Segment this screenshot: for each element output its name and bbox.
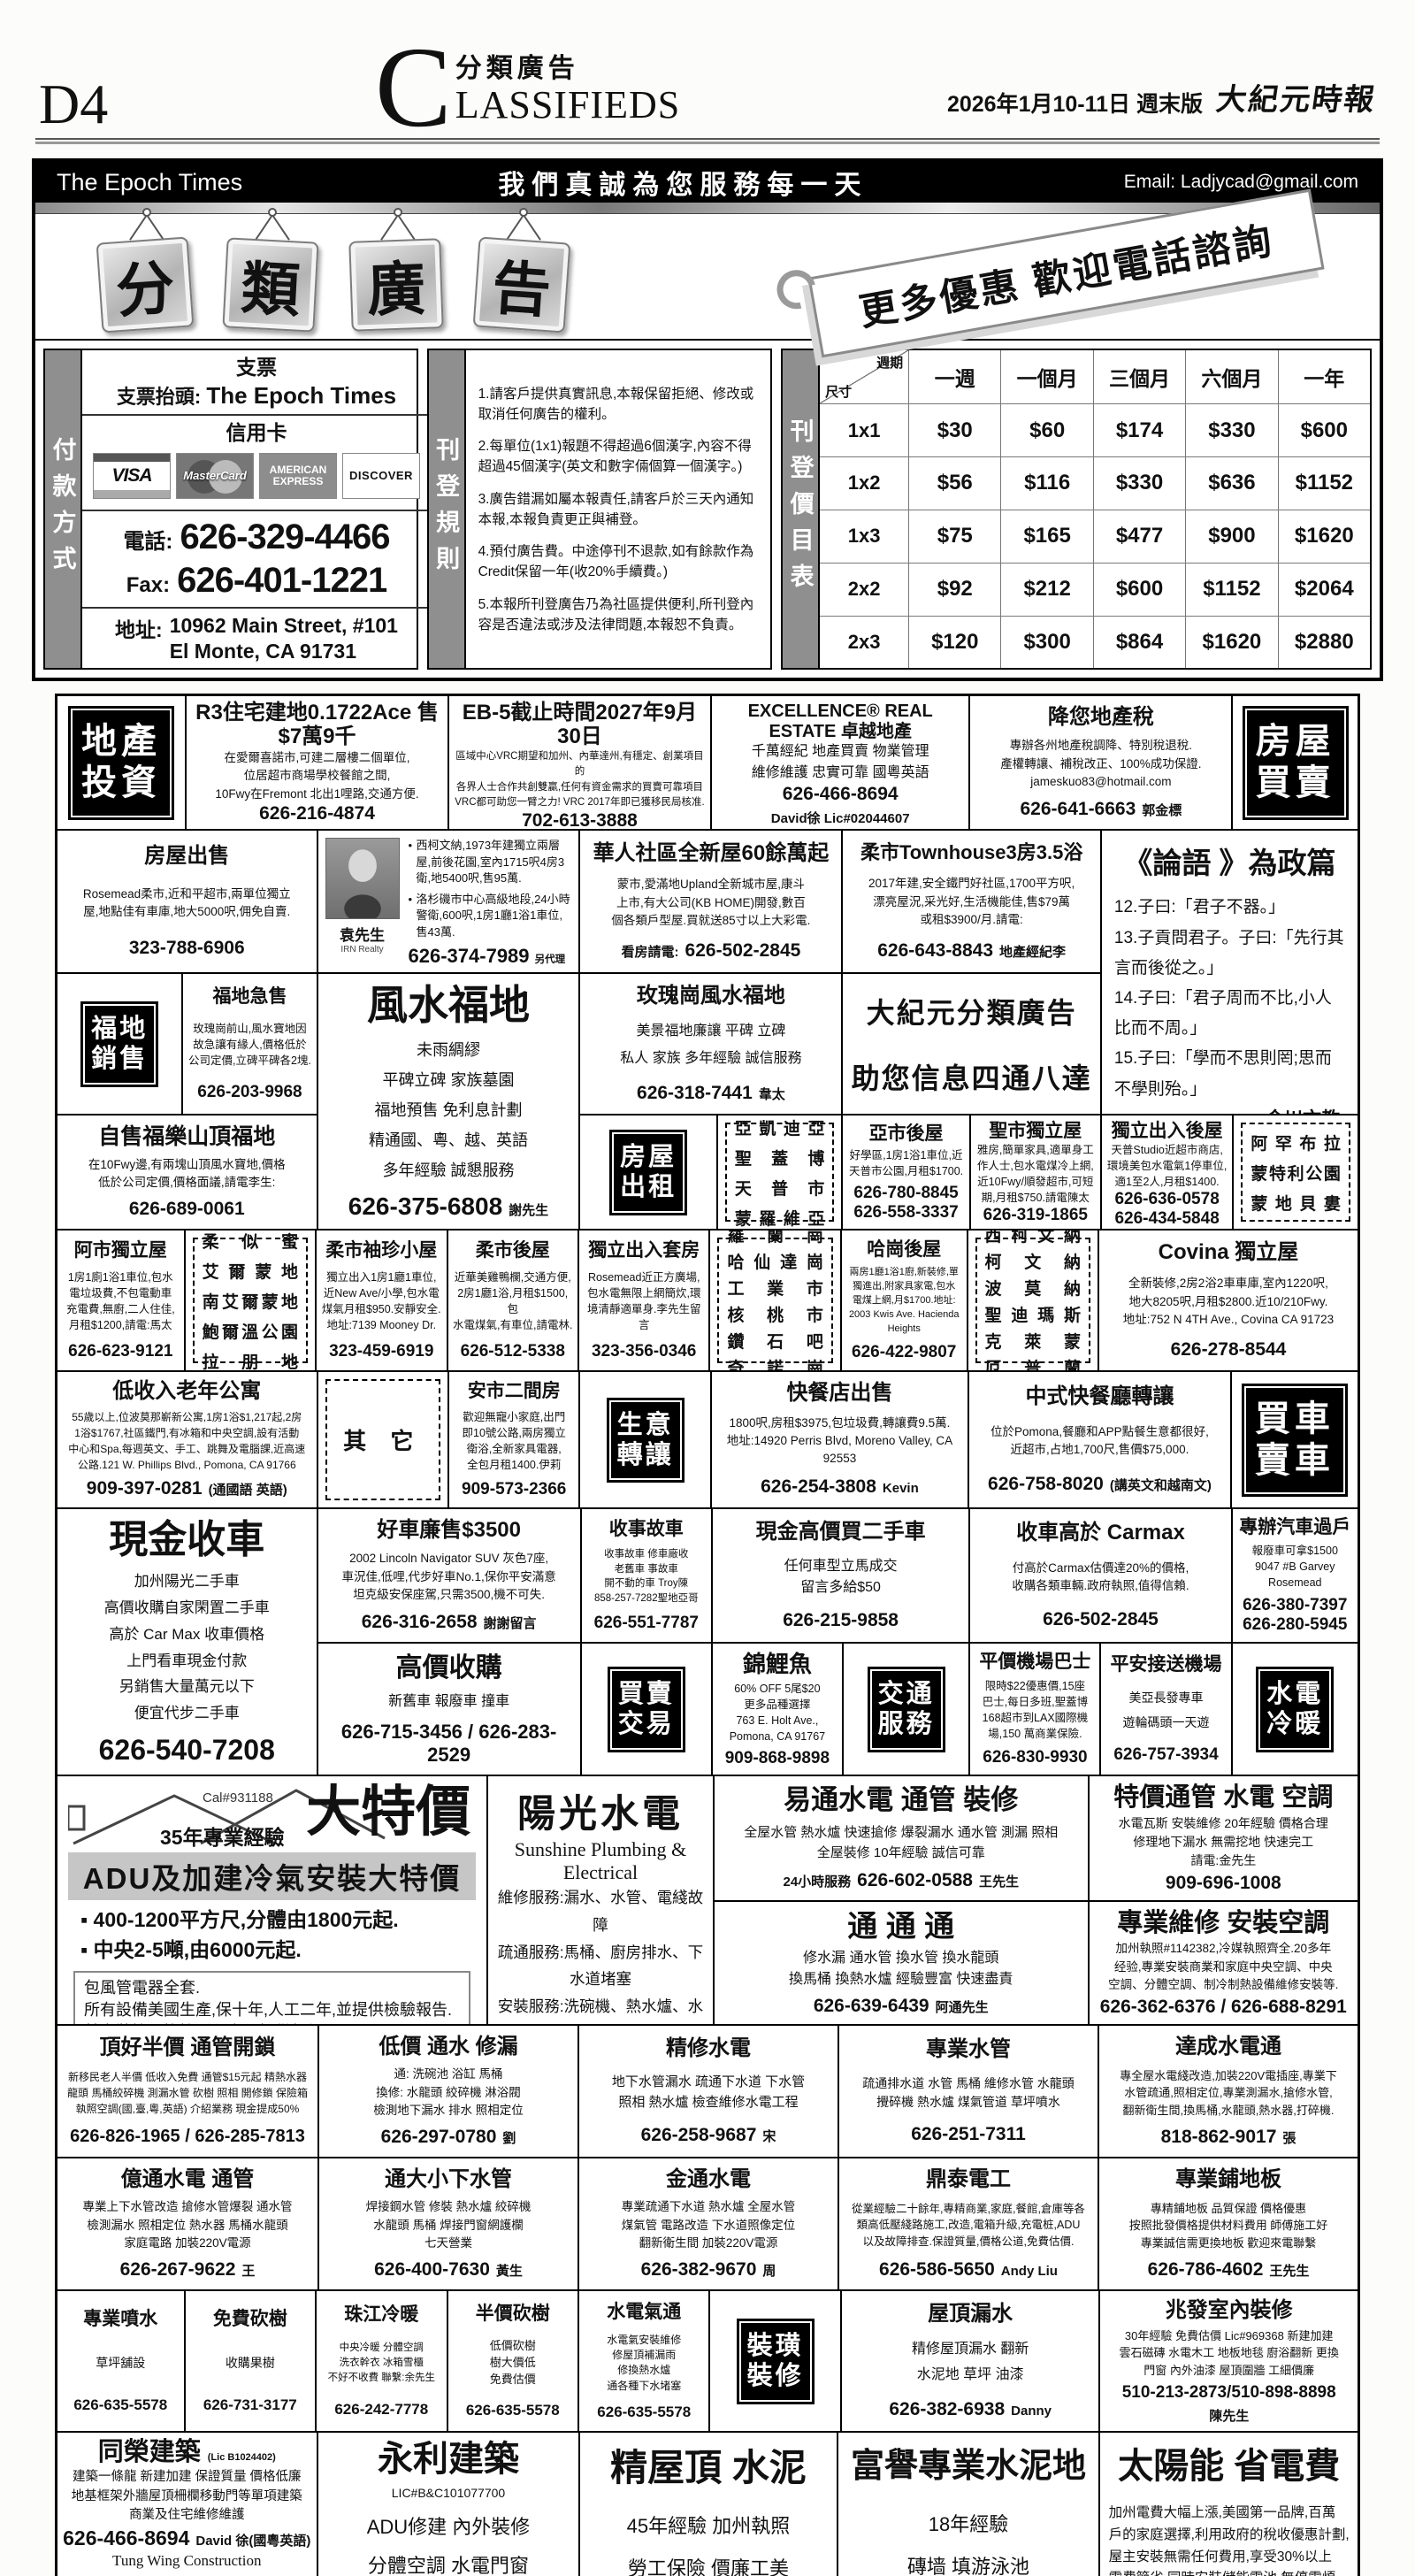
ad-ya-rear-house: 亞市後屋好學區,1房1浴1車位,近天普市公園,月租$1700.626-780-8… xyxy=(843,1115,968,1229)
ad-rosehills-grave: 玫瑰崗風水福地美景福地廉讓 平碑 立碑私人 家族 多年經驗 誠信服務626-31… xyxy=(580,972,841,1114)
section-title-cn: 分類廣告 xyxy=(455,46,681,85)
pricing-size: 1x1 xyxy=(820,403,908,456)
page-header: D4 C 分類廣告 LASSIFIEDS 2026年1月10-11日 週末版 大… xyxy=(0,0,1415,133)
phone-number: 626-512-5338 xyxy=(461,1342,565,1361)
region-covina: 西柯文納柯文納波莫納聖迪瑪斯克萊蒙厄普蘭 xyxy=(967,1230,1098,1370)
promo-ribbon: 更多優惠 歡迎電話諮詢 xyxy=(807,189,1324,358)
phone-suffix: 宋 xyxy=(762,2129,776,2144)
ad-sprinkler: 專業噴水草坪舖設626-635-5578 xyxy=(57,2291,184,2431)
phone-number: 702-613-3888 xyxy=(522,810,638,829)
pricing-col-header: 六個月 xyxy=(1185,350,1277,403)
ad-townhouse: 柔市Townhouse3房3.5浴2017年建,安全鐵門好社區,1700平方呎,… xyxy=(843,831,1100,972)
phone-suffix: 周 xyxy=(762,2264,776,2279)
paper-name: 大紀元時報 xyxy=(1214,75,1380,119)
pricing-value: $60 xyxy=(1000,403,1092,456)
pricing-corner: 週期尺寸 xyxy=(820,350,908,403)
pricing-value: $300 xyxy=(1000,616,1092,669)
pricing-col-header: 一年 xyxy=(1278,350,1370,403)
pin-icon xyxy=(394,208,402,217)
card-heading: 信用卡 xyxy=(89,420,424,447)
ad-epoch-house-ad: 大紀元分類廣告助您信息四通八達 xyxy=(843,972,1100,1114)
phone-number: 626-643-8843 xyxy=(877,940,993,962)
ad-fuyu-cement: 富譽專業水泥地 18年經驗磚墙 填游泳池木围墙 塑料塑木围墙 626-899-8… xyxy=(837,2433,1099,2576)
analects-signature: 金川文教 xyxy=(1114,1105,1345,1115)
address-label: 地址: xyxy=(115,613,163,664)
ad-koi-fish: 錦鯉魚60% OFF 5尾$20更多品種選擇763 E. Holt Ave.,P… xyxy=(711,1644,842,1775)
phone-number: 626-374-7989 xyxy=(409,945,530,967)
discover-icon: DISCOVER xyxy=(342,453,420,499)
pricing-side-label: 刊登價目表 xyxy=(783,350,820,668)
phone-suffix: 郭金標 xyxy=(1142,803,1182,818)
rules-box: 刊登規則 1.請客戶提供真實訊息,本報保留拒絕、修改或取消任何廣告的權利。 2.… xyxy=(427,349,773,670)
ad-above-carmax: 收車高於 Carmax付高於Carmax估價達20%的價格,收購各類車輛.政府執… xyxy=(968,1509,1230,1642)
band-services: 專業噴水草坪舖設626-635-5578 免費砍樹收購果樹626-731-317… xyxy=(57,2289,1358,2431)
ad-roof-leak: 屋頂漏水精修屋頂漏水 翻新水泥地 草坪 油漆626-382-6938Danny xyxy=(840,2291,1099,2431)
ad-chinese-fastfood: 中式快餐廳轉讓位於Pomona,餐廳和APP點餐生意都很好,近超市,占地1,70… xyxy=(968,1372,1230,1507)
rules-list: 1.請客戶提供真實訊息,本報保留拒絕、修改或取消任何廣告的權利。 2.每單位(1… xyxy=(466,350,771,668)
phone-number: 626-636-0578 xyxy=(1114,1190,1219,1209)
ad-title: 大特價 xyxy=(306,1785,470,1840)
ad-anshi-rooms: 安市二間房歡迎無寵小家庭,出門即10號公路,兩房獨立衛浴,全新家具電器,全包月租… xyxy=(447,1372,578,1507)
phone-number: 323-459-6919 xyxy=(329,1342,433,1361)
ad-cash-for-cars: 現金收車加州陽光二手車高價收購自家閑置二手車高於 Car Max 收車價格上門看… xyxy=(57,1509,317,1775)
ad-senior-apartment: 低收入老年公寓55歲以上,位波莫那嶄新公寓,1房1浴$1,217起,2房1浴$1… xyxy=(57,1372,317,1507)
phone-number: 626-758-8020 xyxy=(988,1474,1104,1495)
phone-suffix: 劉 xyxy=(502,2131,516,2146)
string-right xyxy=(397,215,416,241)
ad-special-pipe: 特價通管 水電 空調水電瓦斯 安裝維修 20年經驗 價格合理修理地下漏水 無需挖… xyxy=(1088,1776,1358,1900)
banner: The Epoch Times 我們真誠為您服務每一天 Email: Ladjy… xyxy=(35,162,1380,203)
ad-temple-rear-house: 獨立出入後屋天普Studio近超市商店,環境美包水電氣1停車位,適1至2人,月租… xyxy=(1102,1115,1232,1229)
ad-self-grave: 自售福樂山頂福地在10Fwy邊,有兩塊山頂風水寶地,價格低於公司定價,價格面議,… xyxy=(57,1114,317,1229)
phone-number: 626-254-3808 xyxy=(761,1476,876,1498)
payee-name: The Epoch Times xyxy=(206,382,396,409)
pricing-size: 1x3 xyxy=(820,510,908,563)
phone-number: 626-258-9687 xyxy=(641,2125,757,2146)
payment-box: 付款方式 支票 支票抬頭: The Epoch Times 信用卡 VISA M… xyxy=(43,349,418,670)
phone-number: 626-434-5848 xyxy=(1114,1209,1219,1229)
phone-number: 626-267-9622 xyxy=(120,2259,236,2281)
sign-plate: 告 xyxy=(473,237,571,333)
phone-number: 626-786-4602 xyxy=(1148,2259,1264,2281)
band-rentals: 阿市獨立屋1房1廁1浴1車位,包水電垃圾費,不包電動車充電費,無廚,二人住佳,月… xyxy=(57,1229,1358,1370)
phone-number: 626-382-9670 xyxy=(641,2259,757,2281)
hanging-signs: 分 類 廣 告 xyxy=(99,211,571,335)
rule-item: 1.請客戶提供真實訊息,本報保留拒絕、修改或取消任何廣告的權利。 xyxy=(478,384,759,425)
pricing-value: $92 xyxy=(908,563,1000,616)
phone-number: 626-689-0061 xyxy=(129,1199,245,1220)
phone-number: 626-623-9121 xyxy=(68,1342,172,1361)
ad-accident-car: 收事故車收事故車 修車廠收老舊車 事故車開不動的車 Troy陳858-257-7… xyxy=(580,1509,711,1642)
ad-pro-pipe: 專業水管疏通排水道 水管 馬桶 維修水管 水龍頭攪碎機 熱水爐 煤氣管道 草坪噴… xyxy=(838,2026,1098,2157)
string-right xyxy=(146,215,164,241)
ad-house-for-sale: 房屋出售Rosemead柔市,近和平超市,兩單位獨立屋,地點佳有車庫,地大500… xyxy=(57,831,317,972)
hanging-sign: 分 xyxy=(99,211,195,335)
pricing-value: $2880 xyxy=(1278,616,1370,669)
label-house-sale: 房屋買賣 xyxy=(1231,696,1358,829)
ad-solar: 太陽能 省電費 加州電費大幅上漲,美國第一品牌,百萬戶的家庭選擇,利用政府的稅收… xyxy=(1098,2433,1358,2576)
sign-plate: 分 xyxy=(96,237,195,333)
ad-roof-cement: 精屋頂 水泥 45年經驗 加州執照勞工保險 價廉工美專做大小工程 水泥地 626… xyxy=(578,2433,836,2576)
pin-icon xyxy=(519,208,528,217)
phone-number: 626-602-0588 xyxy=(857,1870,973,1891)
ad-rm-rear-house: 柔市後屋近華美雞鴨欄,交通方便,2房1廳1浴,月租$1500,包水電煤氣,有車位… xyxy=(447,1230,577,1370)
phone-number: 626-319-1865 xyxy=(983,1206,1088,1225)
payment-side-label: 付款方式 xyxy=(45,350,82,668)
ad-tong-tong-tong: 通 通 通修水漏 通水管 換水管 換水龍頭換馬桶 換熱水爐 經驗豐富 快速盡責6… xyxy=(715,1902,1088,2024)
pricing-value: $116 xyxy=(1000,456,1092,510)
region-rowland: 羅蘭崗哈仙達崗工業市核桃市鑽石吧奇諾崗 xyxy=(708,1230,839,1370)
ad-dacheng: 達成水電通專全屋水電綫改造,加裝220V電插座,專業下水管疏通,照相定位,專業測… xyxy=(1098,2026,1358,2157)
ad-high-price-buy: 高價收購新舊車 報廢車 撞車626-715-3456 / 626-283-252… xyxy=(318,1644,580,1775)
label-business-transfer: 生意轉讓 xyxy=(578,1372,709,1507)
mastercard-icon: MasterCard xyxy=(176,453,254,499)
card-row: 信用卡 VISA MasterCard AMERICAN EXPRESS DIS… xyxy=(82,416,431,511)
label-decor: 裝璜裝修 xyxy=(708,2291,839,2431)
masthead: 分 類 廣 告 更多優惠 歡迎電話諮詢 xyxy=(35,203,1380,341)
pin-icon xyxy=(268,208,277,217)
phone-suffix: 阿通先生 xyxy=(936,2000,989,2015)
address-line1: 10962 Main Street, #101 xyxy=(170,614,398,637)
pricing-value: $1620 xyxy=(1278,510,1370,563)
phone-suffix: 地產經紀李 xyxy=(999,945,1066,960)
phone-number: 626-780-8845 xyxy=(853,1184,958,1203)
phone-number: 626-715-3456 / 626-283-2529 xyxy=(323,1721,576,1766)
ad-cheap-fix: 低價 通水 修漏通: 洗碗池 浴缸 馬桶換修: 水龍頭 絞碎機 淋浴閥檢測地下漏… xyxy=(317,2026,577,2157)
ad-eb5: EB-5截止時間2027年9月30日區域中心VRC期望和加州、內華達州,有穩定、… xyxy=(447,696,710,829)
phone-suffix: 王 xyxy=(241,2264,255,2279)
header-right: 2026年1月10-11日 週末版 大紀元時報 xyxy=(947,75,1376,129)
phone-number: 626-297-0780 xyxy=(381,2127,497,2148)
phone-number: 909-868-9898 xyxy=(725,1749,830,1768)
label-plumbing-hvac: 水電冷暖 xyxy=(1231,1644,1358,1775)
ad-fengshui-grave: 風水福地未雨綢繆平碑立碑 家族墓園福地預售 免利息計劃精通國、粵、越、英語多年經… xyxy=(318,972,579,1229)
phone-number: 626-382-6938 xyxy=(889,2399,1005,2420)
string-left xyxy=(255,215,273,241)
phone-number: 626-635-5578 xyxy=(597,2403,691,2421)
pricing-value: $212 xyxy=(1000,563,1092,616)
phone-number: 818-862-9017 xyxy=(1161,2127,1277,2148)
phone-number: 626-380-7397 xyxy=(1243,1596,1347,1615)
agent-photo xyxy=(325,838,400,919)
phone-prefix: 看房請電: xyxy=(622,945,679,960)
address-row: 地址: 10962 Main Street, #101 El Monte, CA… xyxy=(82,609,431,669)
ad-airport-shuttle: 平安接送機場美亞長發專車遊輪碼頭一天遊626-757-3934 xyxy=(1099,1644,1230,1775)
contractor-license: Cal#931188 xyxy=(203,1790,273,1805)
promo-frame: The Epoch Times 我們真誠為您服務每一天 Email: Ladjy… xyxy=(32,158,1383,681)
pricing-value: $174 xyxy=(1093,403,1185,456)
card-logos: VISA MasterCard AMERICAN EXPRESS DISCOVE… xyxy=(89,447,424,505)
phone-number: 626-731-3177 xyxy=(203,2396,297,2414)
ad-jingxiu: 精修水電地下水管漏水 疏通下水道 下水管照相 熱水爐 檢查維修水電工程626-2… xyxy=(577,2026,838,2157)
phone-number: 510-213-2873/510-898-8898 xyxy=(1122,2383,1336,2403)
ad-jintong: 金通水電專業疏通下水道 熱水爐 全屋水管煤氣管 電路改造 下水道照像定位翻新衛生… xyxy=(577,2158,838,2289)
ad-ah-house: 阿市獨立屋1房1廁1浴1車位,包水電垃圾費,不包電動車充電費,無廚,二人住佳,月… xyxy=(57,1230,184,1370)
region-other: 其 它 xyxy=(317,1372,447,1507)
phone-number: 626-400-7630 xyxy=(374,2259,490,2281)
check-heading: 支票 xyxy=(89,355,424,381)
phone-number: 626-635-5578 xyxy=(73,2396,167,2414)
phone-number: 626-251-7311 xyxy=(911,2124,1026,2145)
check-row: 支票 支票抬頭: The Epoch Times xyxy=(82,350,431,416)
ad-sg-house: 聖市獨立屋雅房,簡單家具,適單身工作人士,包水電煤冷上網,近10Fwy/順發超市… xyxy=(969,1115,1100,1229)
string-right xyxy=(523,215,541,241)
phone-number: 626-757-3934 xyxy=(1113,1745,1218,1765)
pricing-value: $600 xyxy=(1093,563,1185,616)
phone-number: 626-558-3337 xyxy=(853,1203,958,1223)
phone-number: 626-641-6663 xyxy=(1021,799,1136,820)
license-number: LIC#B&C101077700 xyxy=(392,2482,505,2505)
phone-suffix: David 徐(國粵英語) xyxy=(195,2534,310,2549)
ad-subtitle: Sunshine Plumbing & Electrical xyxy=(495,1838,706,1884)
ad-good-car: 好車廉售$35002002 Lincoln Navigator SUV 灰色7座… xyxy=(318,1509,580,1642)
phone-suffix: Danny xyxy=(1011,2403,1052,2419)
pricing-value: $2064 xyxy=(1278,563,1370,616)
band-housing-graves: 房屋出售Rosemead柔市,近和平超市,兩單位獨立屋,地點佳有車庫,地大500… xyxy=(57,829,1358,1229)
region-sgv: 亞凱迪亞聖蓋博天普市蒙羅維亞 xyxy=(716,1115,842,1229)
phone-number: 626-422-9807 xyxy=(852,1343,956,1362)
payee-label: 支票抬頭: xyxy=(117,386,201,408)
ad-fastfood-sale: 快餐店出售1800呎,房租$3975,包垃圾費,轉讓費9.5萬.地址:14920… xyxy=(710,1372,968,1507)
phone-suffix: David徐 Lic#02044607 xyxy=(771,811,910,826)
string-right xyxy=(272,215,290,241)
classifieds-table: 地產投資 R3住宅建地0.1722Ace 售$7萬9千在愛爾喜諾市,可建二層樓二… xyxy=(55,694,1360,2576)
ad-yitong2: 億通水電 通管專業上下水管改造 搶修水管爆裂 通水管檢測漏水 照相定位 熱水器 … xyxy=(57,2158,317,2289)
phone-suffix: 張 xyxy=(1282,2131,1296,2146)
sign-plate: 類 xyxy=(222,238,318,333)
rule-item: 2.每單位(1x1)報題不得超過6個漢字,內容不得超過45個漢字(英文和數字倆個… xyxy=(478,436,759,478)
phone-number: 626-278-8544 xyxy=(1171,1339,1287,1361)
ad-excellence: EXCELLENCE® REAL ESTATE 卓越地產千萬經紀 地產買賣 物業… xyxy=(710,696,969,829)
ad-utility-fix: 水電氣通水電氣安裝維修修屋頂補漏雨修換熱水爐通各種下水堵塞626-635-557… xyxy=(577,2291,708,2431)
rule-item: 3.廣告錯漏如屬本報責任,請客戶於三天內通知本報,本報負責更正與補登。 xyxy=(478,489,759,531)
pricing-col-header: 一週 xyxy=(908,350,1000,403)
phone-number: 626-316-2658 xyxy=(362,1612,478,1633)
ad-zhaofa-remodel: 兆發室內裝修30年經驗 免費估價 Lic#969368 新建加建雲石磁磚 水電木… xyxy=(1098,2291,1358,2431)
ad-tongrong-construction: 同榮建築 (Lic B1024402) 建築一條龍 新建加建 保證質量 價格低廉… xyxy=(57,2433,317,2576)
pricing-value: $330 xyxy=(1093,456,1185,510)
agent-name: 袁先生 xyxy=(340,923,385,945)
issue-date: 2026年1月10-11日 週末版 xyxy=(947,87,1203,119)
pricing-value: $56 xyxy=(908,456,1000,510)
pricing-value: $120 xyxy=(908,616,1000,669)
phone-suffix: 王先生 xyxy=(979,1874,1019,1890)
rule-item: 5.本報所刊登廣告乃為社區提供便利,所刊登內容是否違法或涉及法律問題,本報恕不負… xyxy=(478,594,759,636)
phone-number: 626-280-5945 xyxy=(1243,1615,1347,1635)
phone-number: 626-215-9858 xyxy=(783,1610,899,1631)
pricing-value: $864 xyxy=(1093,616,1185,669)
string-left xyxy=(380,215,399,241)
pricing-value: $75 xyxy=(908,510,1000,563)
ribbon-text: 更多優惠 歡迎電話諮詢 xyxy=(807,189,1324,358)
pricing-col-header: 一個月 xyxy=(1000,350,1092,403)
pin-icon xyxy=(142,208,151,217)
band-plumbers-1: 頂好半價 通管開鎖新移民老人半價 低收入免費 通管$15元起 精熱水器龍頭 馬桶… xyxy=(57,2024,1358,2157)
ad-property-tax: 降您地產稅專辦各州地產稅調降、特別稅退稅.產權轉讓、補稅改正、100%成功保證.… xyxy=(968,696,1231,829)
ad-zhujiang-hvac: 珠江冷暖中央冷暖 分體空調洗衣幹衣 冰箱雪櫃不好不收費 聯繫:余先生626-24… xyxy=(315,2291,446,2431)
phone-number: 323-788-6906 xyxy=(129,938,245,959)
pricing-table: 週期尺寸 一週 一個月 三個月 六個月 一年 1x1 $30 $60 $174 … xyxy=(820,350,1370,668)
phone-number: 626-318-7441 xyxy=(637,1083,753,1104)
ad-yitong-plumbing: 易通水電 通管 裝修全屋水管 熱水爐 快速搶修 爆裂漏水 通水管 測漏 照相全屋… xyxy=(715,1776,1088,1900)
pricing-box: 刊登價目表 週期尺寸 一週 一個月 三個月 六個月 一年 1x1 $30 $60… xyxy=(781,349,1372,670)
amex-icon: AMERICAN EXPRESS xyxy=(259,453,337,499)
phone-suffix: (講英文和越南文) xyxy=(1110,1478,1212,1493)
phone-number: 626-502-2845 xyxy=(685,940,801,962)
address-line2: El Monte, CA 91731 xyxy=(170,640,356,663)
band-business: 低收入老年公寓55歲以上,位波莫那嶄新公寓,1房1浴$1,217起,2房1浴$1… xyxy=(57,1370,1358,1507)
label-car-trade: 買車賣車 xyxy=(1230,1372,1358,1507)
pricing-size: 2x3 xyxy=(820,616,908,669)
pricing-value: $330 xyxy=(1185,403,1277,456)
ad-dinghao: 頂好半價 通管開鎖新移民老人半價 低收入免費 通管$15元起 精熱水器龍頭 馬桶… xyxy=(57,2026,317,2157)
ad-flooring: 專業鋪地板專精鋪地板 品質保證 價格優惠按照批發價格提供材料費用 師傅施工好專業… xyxy=(1098,2158,1358,2289)
phone-number: 909-397-0281 xyxy=(87,1478,203,1499)
section-initial: C xyxy=(375,47,452,130)
ad-free-tree-cut: 免費砍樹收購果樹626-731-3177 xyxy=(184,2291,315,2431)
ad-hvac-big-sale: Cal#931188 35年專業經驗 大特價 ADU及加建冷氣安裝大特價 400… xyxy=(57,1776,486,2024)
license-number: (Lic B1024402) xyxy=(208,2452,276,2463)
ad-suite: 獨立出入套房Rosemead近正方廣場,包水電無限上網簡炊,環境清靜適單身.李先… xyxy=(577,1230,708,1370)
ad-airport-bus: 平價機場巴士限時$22優惠價,15座巴士,每日多班,聖蓋博168超市到LAX國際… xyxy=(968,1644,1099,1775)
phone-number: 909-573-2366 xyxy=(462,1480,566,1499)
ad-half-price-tree: 半價砍樹低價砍樹樹大價低免費估價626-635-5578 xyxy=(447,2291,577,2431)
office-phone: 626-329-4466 xyxy=(180,517,389,557)
ad-r3-land: R3住宅建地0.1722Ace 售$7萬9千在愛爾喜諾市,可建二層樓二個單位,位… xyxy=(185,696,447,829)
header-rule xyxy=(35,138,1380,144)
section-title-en: LASSIFIEDS xyxy=(455,85,681,126)
ad-car-title-transfer: 專辦汽車過戶報廢車可拿$15009047 #B Garvey Rosemead6… xyxy=(1231,1509,1358,1642)
label-house-rent: 房屋出租 xyxy=(580,1115,715,1229)
phone-suffix: 王先生 xyxy=(1269,2264,1309,2279)
banner-brand: The Epoch Times xyxy=(57,169,242,196)
hanging-sign: 類 xyxy=(225,211,320,335)
visa-icon: VISA xyxy=(93,453,171,499)
pricing-value: $1152 xyxy=(1278,456,1370,510)
band-plumbers-2: 億通水電 通管專業上下水管改造 搶修水管爆裂 通水管檢測漏水 照相定位 熱水器 … xyxy=(57,2157,1358,2289)
pricing-value: $900 xyxy=(1185,510,1277,563)
phone-number: 626-242-7778 xyxy=(334,2401,428,2419)
phone-number: 626-586-5650 xyxy=(879,2259,995,2281)
band-cars: 現金收車加州陽光二手車高價收購自家閑置二手車高於 Car Max 收車價格上門看… xyxy=(57,1507,1358,1775)
band-hvac: Cal#931188 35年專業經驗 大特價 ADU及加建冷氣安裝大特價 400… xyxy=(57,1775,1358,2024)
phone-suffix: Andy Liu xyxy=(1001,2264,1058,2279)
phone-number: 909-696-1008 xyxy=(1166,1873,1281,1894)
phone-number: 626-639-6439 xyxy=(814,1996,929,2017)
phone-suffix: 陳先生 xyxy=(1209,2409,1249,2424)
phone-suffix: Kevin xyxy=(883,1481,919,1496)
phone-fax-row: 電話:626-329-4466 Fax:626-401-1221 xyxy=(82,511,431,609)
phone-number: 626-362-6376 / 626-688-8291 xyxy=(1100,1997,1347,2018)
pricing-value: $165 xyxy=(1000,510,1092,563)
phone-suffix: 韋太 xyxy=(759,1087,785,1102)
agent-company: IRN Realty xyxy=(340,945,383,954)
phone-number: 626-216-4874 xyxy=(259,803,375,824)
phone-suffix: 黃生 xyxy=(496,2264,523,2279)
hanging-sign: 廣 xyxy=(350,211,446,335)
phone-number: 626-551-7787 xyxy=(594,1614,699,1633)
ad-new-homes: 華人社區全新屋60餘萬起蒙市,愛滿地Upland全新城市屋,康斗上市,有大公司(… xyxy=(580,831,841,972)
hanging-sign: 告 xyxy=(476,211,571,335)
ad-hacienda-rear: 哈崗後屋兩房1廳1浴1廚,新裝修,單獨進出,附家具家電,包水電煤上網,月$170… xyxy=(840,1230,967,1370)
page-number: D4 xyxy=(39,79,108,130)
band-construction: 同榮建築 (Lic B1024402) 建築一條龍 新建加建 保證質量 價格低廉… xyxy=(57,2431,1358,2576)
ad-subtitle-bar: ADU及加建冷氣安裝大特價 xyxy=(68,1852,476,1900)
label-grave-sale: 福地銷售 xyxy=(57,974,181,1114)
band-real-estate: 地產投資 R3住宅建地0.1722Ace 售$7萬9千在愛爾喜諾市,可建二層樓二… xyxy=(57,696,1358,829)
info-band: 付款方式 支票 支票抬頭: The Epoch Times 信用卡 VISA M… xyxy=(35,341,1380,678)
pricing-col-header: 三個月 xyxy=(1093,350,1185,403)
phone-number: 626-635-5578 xyxy=(466,2402,560,2419)
newspaper-page: D4 C 分類廣告 LASSIFIEDS 2026年1月10-11日 週末版 大… xyxy=(0,0,1415,2576)
phone-number: 626-466-8694 xyxy=(63,2526,189,2549)
ad-rm-tiny-house: 柔市袖珍小屋獨立出入1房1廳1車位,近New Ave/小學,包水電煤氣月租$95… xyxy=(315,1230,446,1370)
string-left xyxy=(506,215,524,241)
rules-side-label: 刊登規則 xyxy=(429,350,466,668)
pricing-value: $1620 xyxy=(1185,616,1277,669)
section-title: C 分類廣告 LASSIFIEDS xyxy=(375,46,680,129)
label-real-estate-invest: 地產投資 xyxy=(57,696,185,829)
phone-number: 626-826-1965 / 626-285-7813 xyxy=(70,2127,305,2147)
region-rosemead: 柔似蜜艾爾蒙地南艾爾蒙地鮑爾溫公園拉朋地 xyxy=(184,1230,315,1370)
ad-dingtai-electric: 鼎泰電工從業經驗二十餘年,專精商業,家庭,餐館,倉庫等各類高低壓綫路施工,改造,… xyxy=(838,2158,1098,2289)
ad-cash-buy-used: 現金高價買二手車任何車型立馬成交留言多給$50626-215-9858 xyxy=(711,1509,969,1642)
pricing-value: $1152 xyxy=(1185,563,1277,616)
rule-item: 4.預付廣告費。中途停刊不退款,如有餘款作為Credit保留一年(收20%手續費… xyxy=(478,541,759,583)
pricing-value: $30 xyxy=(908,403,1000,456)
phone-number: 626-830-9930 xyxy=(983,1748,1087,1767)
sign-plate: 廣 xyxy=(348,238,443,332)
phone-label: 電話: xyxy=(123,524,172,555)
banner-email: Email: Ladjycad@gmail.com xyxy=(1124,172,1358,193)
pricing-size: 2x2 xyxy=(820,563,908,616)
ad-covina-house: Covina 獨立屋全新裝修,2房2浴2車車庫,室內1220呎,地大8205呎,… xyxy=(1098,1230,1358,1370)
ad-sunshine-plumbing: 陽光水電 Sunshine Plumbing & Electrical 維修服務… xyxy=(486,1776,713,2024)
pricing-value: $636 xyxy=(1185,456,1277,510)
ad-pro-ac: 專業維修 安裝空調加州執照#1142382,冷媒執照齊全.20多年经验,專業安裝… xyxy=(1088,1902,1358,2024)
phone-suffix: (通國語 英語) xyxy=(209,1483,287,1498)
ad-yongli-construction: 永利建築 LIC#B&C101077700 ADU修建 內外裝修分體空調 水電門… xyxy=(317,2433,579,2576)
phone-number: 626-203-9968 xyxy=(197,1083,302,1102)
ad-agent-yuan: 袁先生IRN Realty 西柯文納,1973年建獨立兩層屋,前後花園,室內17… xyxy=(318,831,579,972)
banner-slogan: 我們真誠為您服務每一天 xyxy=(498,163,868,202)
ad-grave-urgent: 福地急售玫瑰崗前山,風水寶地因故急讓有緣人,價格低於公司定價,立碑平碑各2塊.6… xyxy=(181,974,316,1114)
label-buy-sell-trade: 買賣交易 xyxy=(580,1644,711,1775)
phone-suffix: 謝謝留言 xyxy=(484,1616,537,1631)
phone-prefix: 24小時服務 xyxy=(783,1874,851,1890)
string-left xyxy=(129,215,148,241)
phone-number: 626-375-6808 xyxy=(348,1192,502,1221)
label-transport-service: 交通服務 xyxy=(842,1644,968,1775)
phone-number: 323-356-0346 xyxy=(592,1342,696,1361)
phone-suffix: 謝先生 xyxy=(509,1203,548,1218)
pricing-size: 1x2 xyxy=(820,456,908,510)
ad-tongda: 通大小下水管焊接鋼水管 修裝 熱水爐 絞碎機水龍頭 馬桶 焊接門窗網護欄七天營業… xyxy=(317,2158,577,2289)
phone-number: 626-502-2845 xyxy=(1043,1609,1159,1630)
region-alhambra: 阿罕布拉蒙特利公園蒙地貝婁 xyxy=(1232,1115,1358,1229)
pricing-value: $477 xyxy=(1093,510,1185,563)
ad-analects: 《論語 》為政篇12.子曰:「君子不器。」13.子貢問君子。子曰:「先行其言而後… xyxy=(1102,831,1358,1114)
phone-number: 626-466-8694 xyxy=(783,784,899,805)
office-fax: 626-401-1221 xyxy=(177,561,386,601)
pricing-value: $600 xyxy=(1278,403,1370,456)
fax-label: Fax: xyxy=(126,573,170,598)
experience-text: 35年專業經驗 xyxy=(160,1821,285,1851)
phone-number: 626-540-7208 xyxy=(99,1734,275,1767)
